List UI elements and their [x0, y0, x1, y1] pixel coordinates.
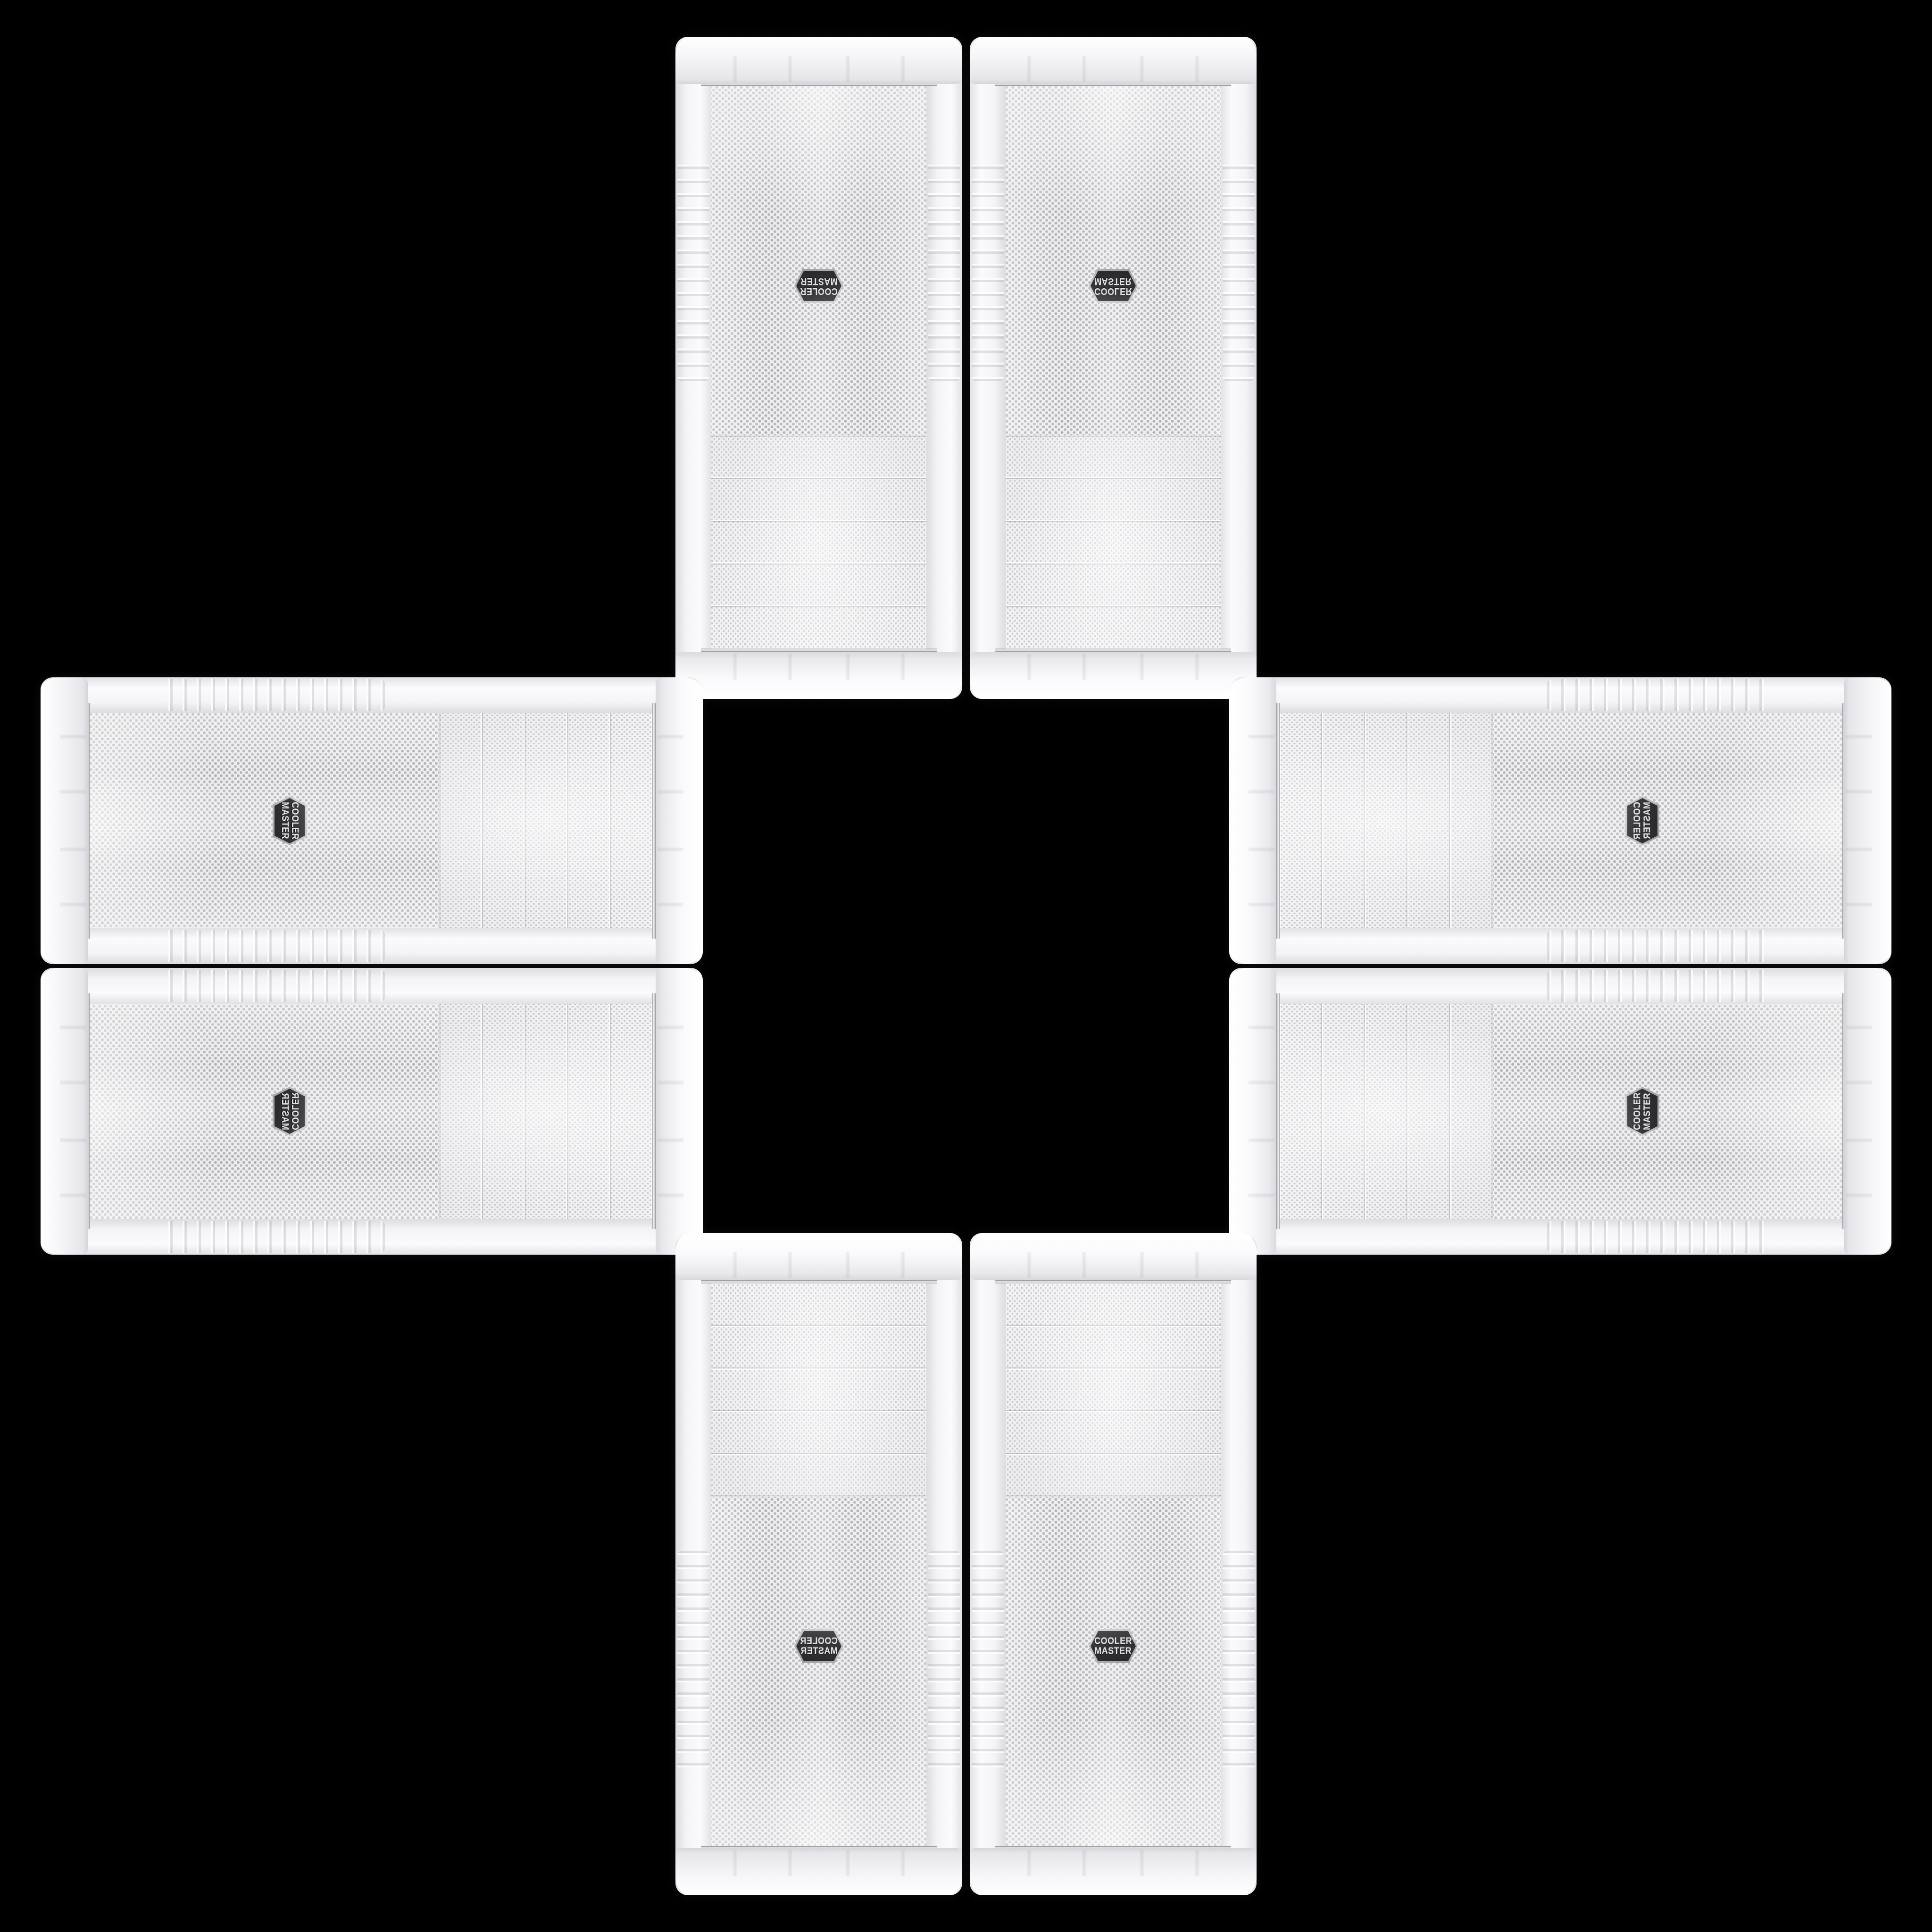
bottom-bezel-cap	[1844, 968, 1891, 1255]
side-flare-right	[1232, 968, 1889, 1004]
top-bezel-cap	[675, 1233, 962, 1280]
top-bezel-cap	[656, 677, 703, 964]
cooler-master-logo-badge: COOLER MASTER	[794, 269, 843, 303]
pc-case-top-left: COOLER MASTER	[675, 37, 962, 699]
pc-case-bottom-left: COOLER MASTER	[675, 1233, 962, 1895]
bezel-ridges	[688, 654, 950, 680]
side-flare-right	[43, 968, 700, 1004]
top-bezel-cap	[656, 968, 703, 1255]
chrome-trim-top	[701, 1280, 937, 1283]
side-flare-left	[926, 1236, 962, 1892]
pc-case: COOLER MASTER	[970, 1233, 1257, 1895]
intake-mesh	[1004, 84, 1223, 435]
top-bezel-cap	[675, 652, 962, 699]
cooler-master-logo-icon: COOLER MASTER	[1091, 271, 1136, 301]
side-flare-right	[1232, 928, 1889, 964]
bezel-ridges	[658, 980, 683, 1242]
side-flare-left	[970, 1236, 1006, 1892]
drive-bay-covers	[439, 1002, 652, 1221]
bottom-bezel-cap	[41, 968, 88, 1255]
bezel-ridges	[982, 1252, 1244, 1278]
cooler-master-logo-badge: COOLER MASTER	[1625, 1087, 1659, 1136]
pc-case: COOLER MASTER	[1229, 677, 1891, 964]
bottom-bezel-cap	[970, 37, 1257, 84]
mesh-front-panel	[709, 1283, 928, 1848]
top-bezel-cap	[970, 652, 1257, 699]
pc-case: COOLER MASTER	[675, 37, 962, 699]
brand-line-1: COOLER	[800, 286, 838, 296]
grip-ribs	[1547, 930, 1770, 962]
bezel-ridges	[688, 1252, 950, 1278]
side-flare-right	[675, 1236, 711, 1892]
bezel-ridges	[1249, 980, 1274, 1242]
brand-line-2: MASTER	[1094, 1646, 1132, 1656]
pc-case-left-upper: COOLER MASTER	[41, 677, 703, 964]
cooler-master-logo-icon: COOLER MASTER	[796, 1631, 841, 1661]
brand-line-1: COOLER	[1094, 286, 1132, 296]
bottom-bezel-cap	[675, 1848, 962, 1895]
grip-ribs	[162, 1221, 385, 1253]
top-bezel-cap	[970, 1233, 1257, 1280]
pc-case: COOLER MASTER	[41, 968, 703, 1255]
cooler-master-logo-icon: COOLER MASTER	[275, 798, 305, 843]
grip-ribs	[972, 1551, 1004, 1774]
mesh-front-panel	[1280, 711, 1844, 930]
grip-ribs	[1547, 1221, 1770, 1253]
brand-line-1: COOLER	[1094, 1636, 1132, 1646]
pc-case-right-lower: COOLER MASTER	[1229, 968, 1891, 1255]
brand-line-2: MASTER	[1642, 1092, 1652, 1130]
cooler-master-logo-icon: COOLER MASTER	[796, 271, 841, 301]
brand-line-1: COOLER	[290, 1092, 300, 1130]
cooler-master-logo-icon: COOLER MASTER	[1627, 1089, 1657, 1134]
intake-mesh	[88, 1002, 439, 1221]
pc-case: COOLER MASTER	[1229, 968, 1891, 1255]
intake-mesh	[1004, 1497, 1223, 1848]
brand-line-2: MASTER	[1094, 276, 1132, 286]
pc-case-bottom-right: COOLER MASTER	[970, 1233, 1257, 1895]
grip-ribs	[677, 158, 709, 381]
mesh-front-panel	[88, 1002, 652, 1221]
side-flare-right	[43, 928, 700, 964]
drive-bay-covers	[1004, 435, 1223, 649]
bezel-ridges	[658, 690, 683, 952]
side-flare-right	[1221, 40, 1257, 696]
mesh-front-panel	[709, 84, 928, 649]
mesh-front-panel	[1004, 1283, 1223, 1848]
mesh-front-panel	[1004, 84, 1223, 649]
side-flare-right	[1221, 1236, 1257, 1892]
grip-ribs	[1223, 158, 1255, 381]
brand-line-1: COOLER	[290, 802, 300, 840]
bottom-bezel-cap	[41, 677, 88, 964]
grip-ribs	[677, 1551, 709, 1774]
pc-case-top-right: COOLER MASTER	[970, 37, 1257, 699]
cooler-master-logo-badge: COOLER MASTER	[1089, 269, 1138, 303]
brand-line-2: MASTER	[280, 1092, 290, 1130]
cooler-master-logo-badge: COOLER MASTER	[1625, 796, 1659, 845]
brand-line-2: MASTER	[800, 276, 837, 286]
drive-bay-covers	[1280, 711, 1493, 930]
pc-case: COOLER MASTER	[41, 677, 703, 964]
grip-ribs	[1547, 970, 1770, 1002]
intake-mesh	[88, 711, 439, 930]
pc-case: COOLER MASTER	[675, 1233, 962, 1895]
bezel-ridges	[688, 1850, 950, 1876]
chrome-trim-top	[995, 649, 1231, 652]
mesh-front-panel	[88, 711, 652, 930]
side-flare-left	[970, 40, 1006, 696]
bezel-ridges	[60, 690, 86, 952]
brand-line-1: COOLER	[1632, 1092, 1642, 1130]
bezel-ridges	[1249, 690, 1274, 952]
bezel-ridges	[982, 56, 1244, 82]
drive-bay-covers	[439, 711, 652, 930]
brand-line-2: MASTER	[1642, 802, 1652, 839]
bezel-ridges	[60, 980, 86, 1242]
brand-line-2: MASTER	[800, 1646, 837, 1656]
bezel-ridges	[982, 654, 1244, 680]
bezel-ridges	[1846, 980, 1872, 1242]
mesh-front-panel	[1280, 1002, 1844, 1221]
intake-mesh	[709, 1497, 928, 1848]
intake-mesh	[1493, 1002, 1844, 1221]
brand-line-2: MASTER	[280, 802, 290, 839]
chrome-trim-top	[701, 649, 937, 652]
bezel-ridges	[688, 56, 950, 82]
grip-ribs	[162, 679, 385, 711]
intake-mesh	[709, 84, 928, 435]
side-flare-left	[1232, 1219, 1889, 1255]
chrome-trim-top	[652, 703, 656, 939]
pc-case-left-lower: COOLER MASTER	[41, 968, 703, 1255]
cooler-master-logo-icon: COOLER MASTER	[1091, 1631, 1136, 1661]
side-flare-left	[43, 1219, 700, 1255]
side-flare-left	[43, 677, 700, 713]
drive-bay-covers	[1280, 1002, 1493, 1221]
grip-ribs	[1223, 1551, 1255, 1774]
top-bezel-cap	[1229, 968, 1276, 1255]
cooler-master-logo-icon: COOLER MASTER	[1627, 798, 1657, 843]
bottom-bezel-cap	[1844, 677, 1891, 964]
pc-case-right-upper: COOLER MASTER	[1229, 677, 1891, 964]
side-flare-left	[926, 40, 962, 696]
grip-ribs	[162, 970, 385, 1002]
grip-ribs	[928, 158, 960, 381]
cooler-master-logo-badge: COOLER MASTER	[273, 796, 307, 845]
brand-line-1: COOLER	[1632, 802, 1642, 840]
drive-bay-covers	[709, 435, 928, 649]
side-flare-right	[675, 40, 711, 696]
grip-ribs	[972, 158, 1004, 381]
cooler-master-logo-badge: COOLER MASTER	[794, 1629, 843, 1663]
bezel-ridges	[1846, 690, 1872, 952]
chrome-trim-top	[652, 993, 656, 1229]
bezel-ridges	[982, 1850, 1244, 1876]
chrome-trim-top	[1276, 993, 1280, 1229]
drive-bay-covers	[1004, 1283, 1223, 1497]
chrome-trim-top	[1276, 703, 1280, 939]
top-bezel-cap	[1229, 677, 1276, 964]
grip-ribs	[928, 1551, 960, 1774]
bottom-bezel-cap	[970, 1848, 1257, 1895]
chrome-trim-top	[995, 1280, 1231, 1283]
side-flare-left	[1232, 677, 1889, 713]
bottom-bezel-cap	[675, 37, 962, 84]
brand-line-1: COOLER	[800, 1636, 838, 1646]
cooler-master-logo-badge: COOLER MASTER	[273, 1087, 307, 1136]
product-collage: COOLER MASTER COOLER MASTER	[0, 0, 1932, 1932]
cooler-master-logo-icon: COOLER MASTER	[275, 1089, 305, 1134]
drive-bay-covers	[709, 1283, 928, 1497]
cooler-master-logo-badge: COOLER MASTER	[1089, 1629, 1138, 1663]
intake-mesh	[1493, 711, 1844, 930]
grip-ribs	[1547, 679, 1770, 711]
grip-ribs	[162, 930, 385, 962]
pc-case: COOLER MASTER	[970, 37, 1257, 699]
